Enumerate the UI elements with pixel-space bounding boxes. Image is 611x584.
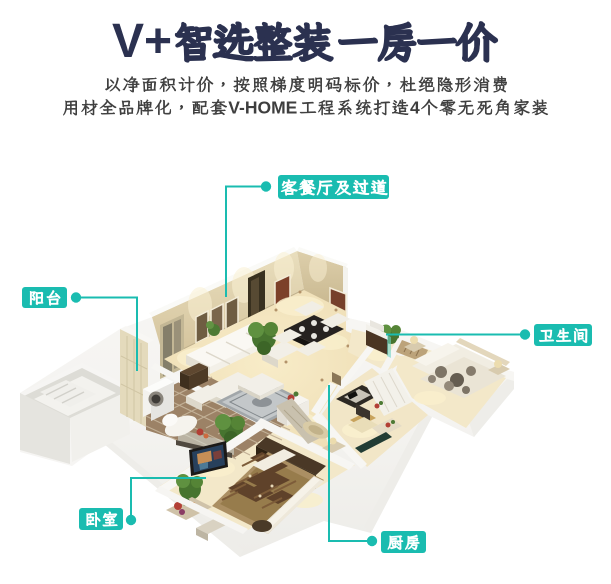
- svg-text:4: 4: [410, 98, 420, 118]
- svg-text:V+: V+: [112, 15, 172, 68]
- svg-text:V-HOME: V-HOME: [228, 98, 297, 118]
